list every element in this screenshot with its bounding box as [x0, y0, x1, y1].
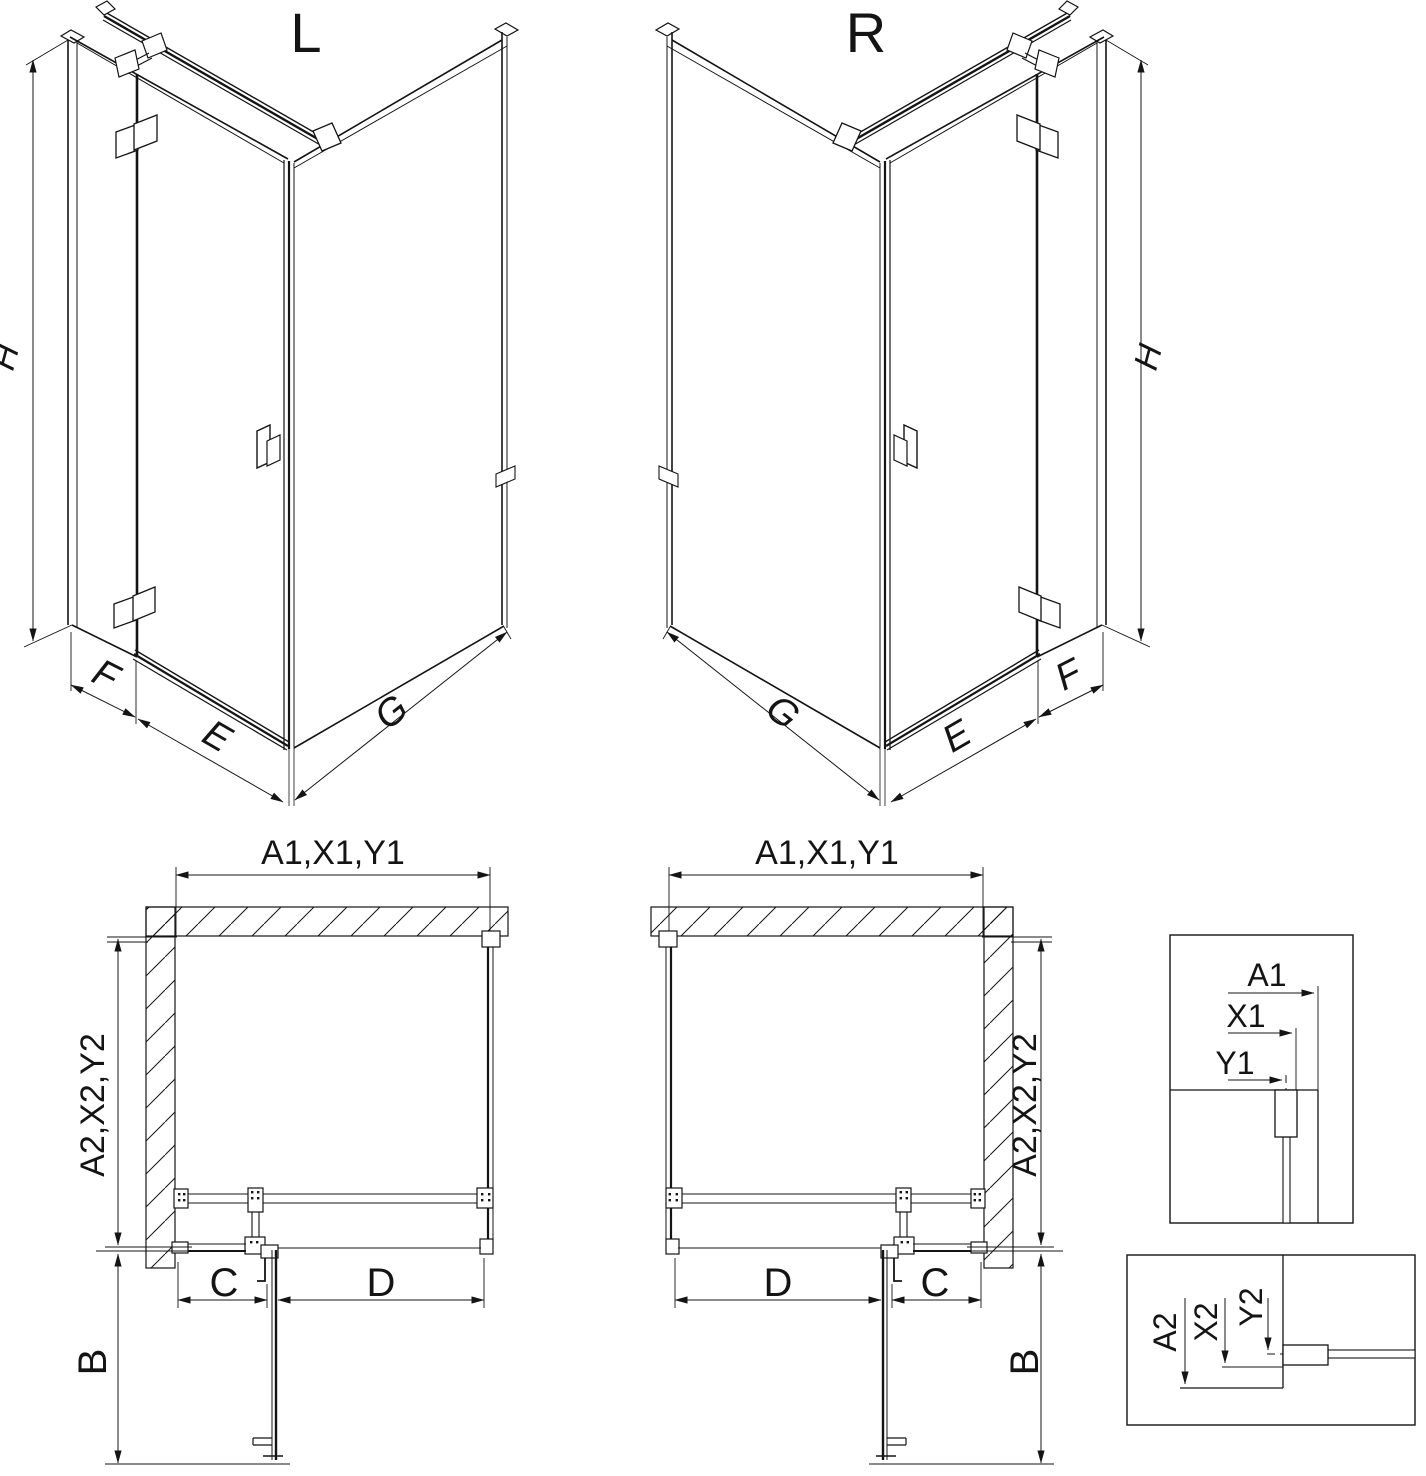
wall-hatch-side-left-plan [146, 907, 175, 1268]
dim-label-b-left-plan: B [71, 1349, 115, 1376]
detail-label-a1: A1 [1247, 957, 1286, 993]
dim-label-h-left: H [0, 340, 27, 374]
detail-label-x2: X2 [1188, 1302, 1224, 1341]
dim-label-d-left-plan: D [367, 1261, 396, 1305]
technical-drawing-canvas: L H F E G R H F E G A1,X1,Y1 A2,X2,Y2 C … [0, 0, 1426, 1476]
shower-enclosure-spec-drawing: L H F E G R H F E G A1,X1,Y1 A2,X2,Y2 C … [0, 0, 1426, 1476]
glass-section [1328, 1350, 1415, 1358]
variant-label-right: R [846, 1, 886, 64]
dim-label-h-right: H [1127, 340, 1170, 374]
wall-hatch-top-right-plan [651, 907, 1013, 936]
wall-hatch-top-left-plan [146, 907, 508, 936]
dim-label-g-left: G [367, 687, 416, 738]
variant-label-left: L [290, 1, 321, 64]
dim-label-f-right: F [1049, 651, 1090, 700]
detail-label-x1: X1 [1226, 998, 1265, 1034]
detail-label-y2: Y2 [1233, 1287, 1269, 1326]
wall-profile [1283, 1345, 1328, 1365]
detail-label-y1: Y1 [1215, 1045, 1254, 1081]
dim-label-a1-left-plan: A1,X1,Y1 [261, 834, 405, 872]
dim-label-c-left-plan: C [210, 1261, 239, 1305]
dim-label-c-right-plan: C [921, 1261, 950, 1305]
dim-label-e-left: E [196, 712, 240, 761]
dim-label-a2-left-plan: A2,X2,Y2 [74, 1033, 112, 1177]
dim-label-e-right: E [936, 712, 980, 761]
dim-label-f-left: F [86, 651, 127, 700]
detail-label-a2: A2 [1147, 1312, 1183, 1351]
glass-section [1283, 1137, 1290, 1223]
dim-label-d-right-plan: D [764, 1261, 793, 1305]
dim-label-b-right-plan: B [1003, 1349, 1047, 1376]
wall-profile [1275, 1090, 1297, 1137]
dim-label-a2-right-plan: A2,X2,Y2 [1006, 1033, 1044, 1177]
dim-label-a1-right-plan: A1,X1,Y1 [755, 834, 899, 872]
dim-label-g-right: G [758, 687, 807, 738]
